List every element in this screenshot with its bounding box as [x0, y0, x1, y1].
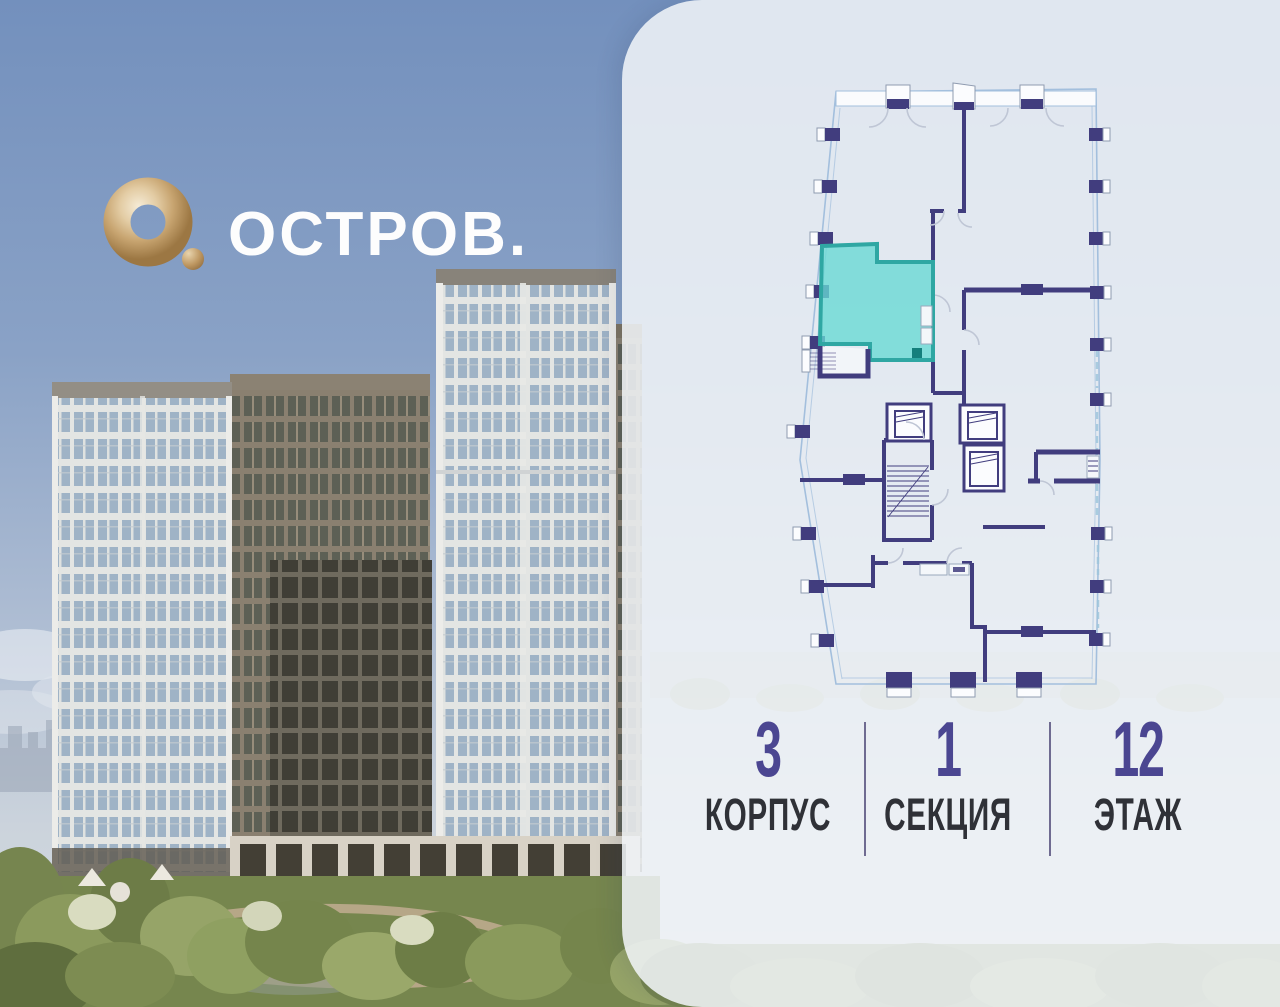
brand-logo: ОСТРОВ. — [96, 170, 208, 282]
info-value: 3 — [700, 712, 836, 786]
info-value: 1 — [880, 712, 1016, 786]
logo-text: ОСТРОВ. — [228, 204, 529, 266]
apartment-shaft-marker — [912, 348, 922, 358]
floor-plan — [780, 70, 1125, 710]
plan-fixtures — [920, 456, 1099, 575]
plan-outline — [800, 89, 1100, 684]
info-floor: 12 ЭТАЖ — [1028, 712, 1248, 837]
info-value: 12 — [1070, 712, 1206, 786]
plan-walls — [800, 108, 1100, 682]
stair-treads — [887, 466, 929, 517]
page: ОСТРОВ. — [0, 0, 1280, 1007]
selected-apartment[interactable] — [820, 244, 933, 360]
plan-core — [884, 404, 1004, 540]
info-label: КОРПУС — [695, 792, 840, 837]
logo-mark-icon — [96, 170, 208, 282]
plan-columns — [787, 83, 1112, 697]
apartment-highlight — [802, 244, 933, 376]
info-label: СЕКЦИЯ — [875, 792, 1020, 837]
info-label: ЭТАЖ — [1065, 792, 1210, 837]
info-section: 1 СЕКЦИЯ — [838, 712, 1058, 837]
